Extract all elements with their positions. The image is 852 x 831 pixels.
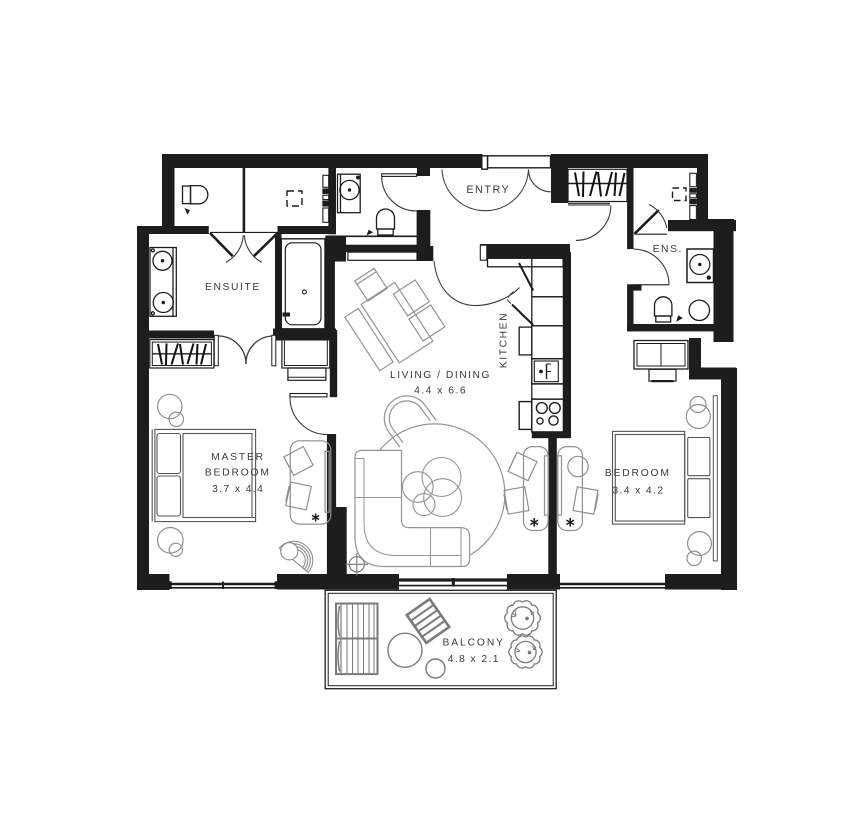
svg-text:BEDROOM: BEDROOM [605, 468, 671, 479]
svg-text:ENSUITE: ENSUITE [205, 282, 261, 293]
svg-text:LIVING / DINING: LIVING / DINING [390, 370, 491, 381]
svg-text:BEDROOM: BEDROOM [205, 468, 271, 479]
svg-text:ENTRY: ENTRY [466, 184, 510, 196]
svg-text:KITCHEN: KITCHEN [498, 312, 509, 368]
svg-text:4.4 x 6.6: 4.4 x 6.6 [414, 386, 467, 397]
svg-text:ENS.: ENS. [653, 244, 683, 255]
svg-text:BALCONY: BALCONY [442, 637, 505, 648]
svg-text:MASTER: MASTER [211, 452, 265, 463]
svg-text:4.8 x 2.1: 4.8 x 2.1 [448, 654, 500, 665]
svg-text:3.4 x 4.2: 3.4 x 4.2 [612, 485, 664, 496]
svg-text:3.7 x 4.4: 3.7 x 4.4 [212, 484, 264, 495]
